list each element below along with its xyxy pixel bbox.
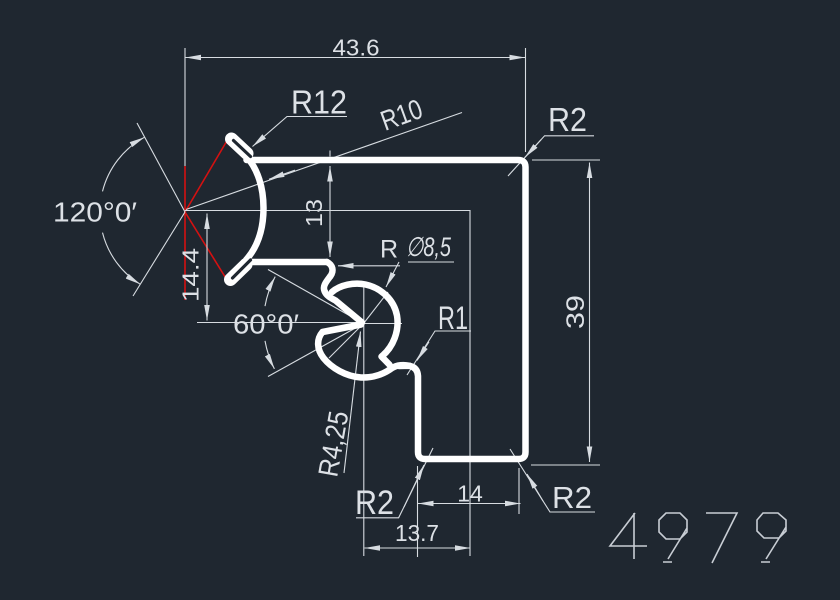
svg-text:39: 39 — [562, 295, 590, 329]
svg-text:13.7: 13.7 — [395, 520, 439, 546]
svg-text:∅8,5: ∅8,5 — [406, 232, 452, 262]
svg-text:R2: R2 — [548, 101, 587, 138]
svg-text:43.6: 43.6 — [333, 35, 380, 61]
svg-text:14: 14 — [457, 481, 483, 507]
svg-text:R2: R2 — [552, 480, 592, 515]
svg-text:120°0′: 120°0′ — [53, 197, 137, 228]
svg-text:13: 13 — [301, 199, 327, 227]
svg-text:R: R — [380, 236, 398, 264]
svg-text:14.4: 14.4 — [178, 248, 204, 302]
svg-text:R2: R2 — [355, 484, 394, 522]
svg-text:R1: R1 — [438, 300, 468, 336]
svg-text:R12: R12 — [291, 84, 347, 121]
svg-text:60°0′: 60°0′ — [233, 309, 299, 340]
